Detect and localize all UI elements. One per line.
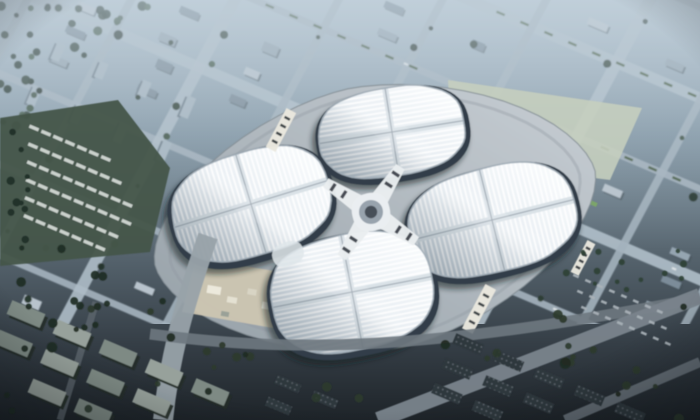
scene-svg <box>0 0 700 420</box>
vignette <box>0 0 700 420</box>
aerial-rendering: Aerial rendering of a four-leaf-clover s… <box>0 0 700 420</box>
